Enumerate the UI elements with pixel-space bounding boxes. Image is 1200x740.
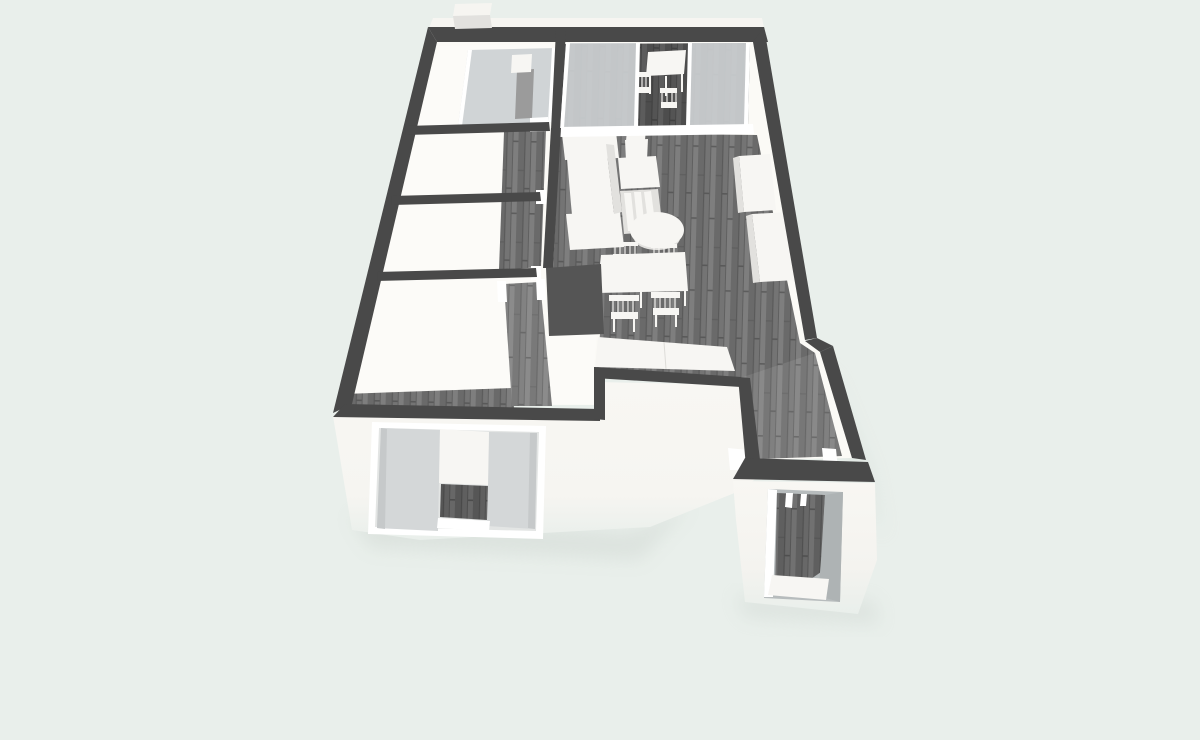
door-threshold-notch-2 xyxy=(800,494,807,506)
rooftop-box xyxy=(453,3,492,29)
cabinet-block-upper xyxy=(739,154,776,212)
dark-dresser xyxy=(515,69,534,119)
balcony-glass-right xyxy=(688,43,750,126)
door-frame-bedroom-left xyxy=(497,281,507,302)
rooftop-box-front xyxy=(453,15,492,29)
kitchen-counter xyxy=(566,144,614,216)
front-window xyxy=(368,422,546,539)
balcony-table xyxy=(646,50,686,76)
wardrobe-glass-front xyxy=(458,48,556,126)
roller-blind xyxy=(439,429,489,485)
window-floor-shade xyxy=(440,484,488,520)
entrance-door xyxy=(764,489,843,602)
dining-table xyxy=(597,252,688,293)
desk xyxy=(618,156,660,189)
wall-front-jog xyxy=(594,367,605,420)
door-frame-bedroom-right xyxy=(536,279,546,300)
round-coffee-table xyxy=(630,212,684,248)
wall-block-core xyxy=(546,264,604,336)
floorplan-3d-viewport[interactable] xyxy=(0,0,1200,740)
wall-hallway-front xyxy=(733,458,875,482)
wall-back xyxy=(428,27,768,42)
furniture-top-left-bedroom xyxy=(458,48,556,132)
storage-box xyxy=(511,54,532,73)
balcony-glass-left xyxy=(560,43,638,128)
door-threshold-notch xyxy=(785,493,793,508)
rooftop-box-top xyxy=(453,3,492,16)
